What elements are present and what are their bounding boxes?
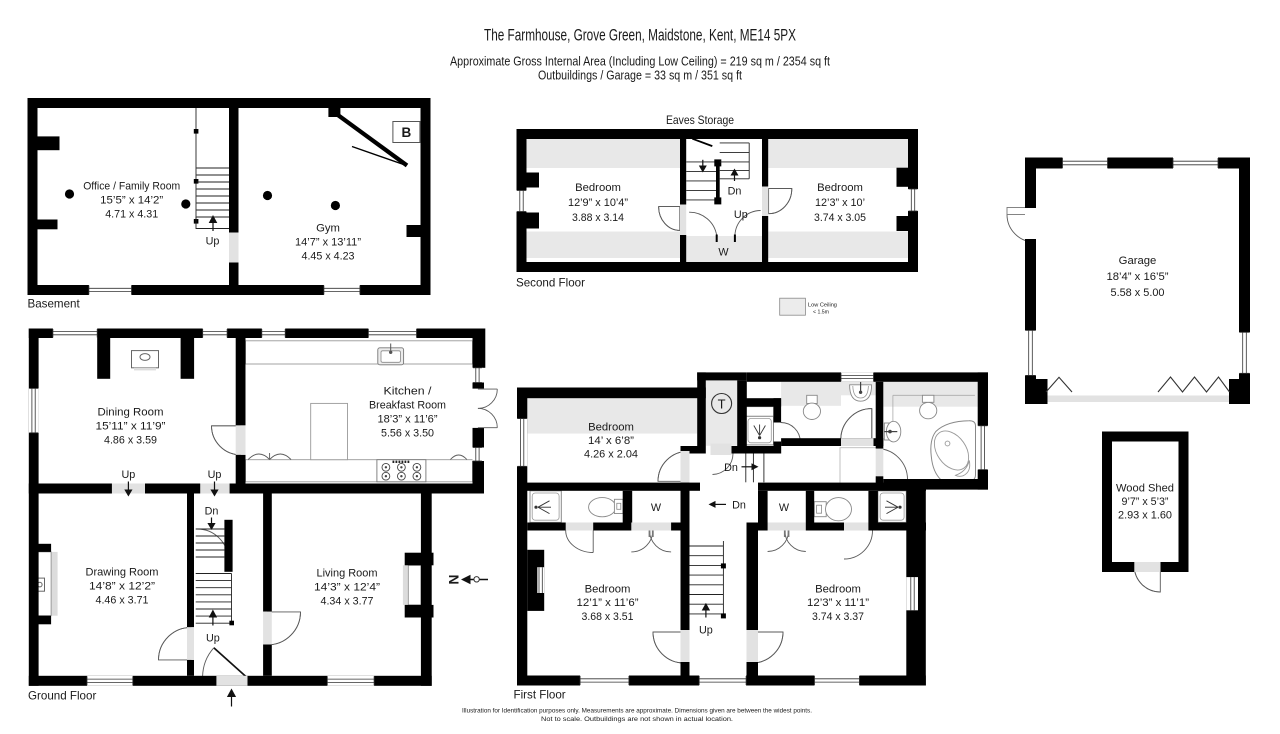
svg-text:B: B <box>402 125 412 140</box>
svg-text:Up: Up <box>734 209 748 221</box>
svg-text:W: W <box>651 502 662 514</box>
svg-text:Up: Up <box>208 469 222 481</box>
svg-text:Up: Up <box>206 236 220 248</box>
svg-text:12’3” x 10’: 12’3” x 10’ <box>815 197 865 209</box>
svg-text:15’5” x 14’2”: 15’5” x 14’2” <box>100 195 163 207</box>
svg-text:4.86 x 3.59: 4.86 x 3.59 <box>104 435 157 447</box>
svg-text:3.74 x 3.05: 3.74 x 3.05 <box>814 212 866 224</box>
svg-text:Up: Up <box>699 625 713 637</box>
svg-text:Dn: Dn <box>732 500 746 512</box>
svg-text:Drawing Room: Drawing Room <box>86 567 159 579</box>
svg-text:Eaves Storage: Eaves Storage <box>666 114 734 127</box>
svg-text:Second Floor: Second Floor <box>516 277 585 290</box>
svg-text:W: W <box>718 247 729 259</box>
svg-text:Bedroom: Bedroom <box>575 182 621 194</box>
svg-text:Dn: Dn <box>724 462 738 474</box>
svg-text:Outbuildings / Garage = 33 sq: Outbuildings / Garage = 33 sq m / 351 sq… <box>538 69 742 83</box>
svg-text:T: T <box>718 396 726 411</box>
svg-text:First Floor: First Floor <box>514 689 566 702</box>
svg-text:Ground Floor: Ground Floor <box>28 690 96 703</box>
svg-text:12’9” x 10’4”: 12’9” x 10’4” <box>568 197 628 209</box>
svg-text:Dn: Dn <box>728 186 742 198</box>
svg-text:Not to scale. Outbuildings ar: Not to scale. Outbuildings are not shown… <box>541 716 733 723</box>
svg-text:N: N <box>446 574 462 584</box>
svg-text:< 1.5m: < 1.5m <box>813 310 829 316</box>
svg-text:Bedroom: Bedroom <box>815 584 861 596</box>
svg-text:14’7” x 13’11”: 14’7” x 13’11” <box>295 237 361 249</box>
svg-text:4.26 x 2.04: 4.26 x 2.04 <box>584 449 638 461</box>
svg-text:Wood Shed: Wood Shed <box>1116 483 1174 495</box>
svg-text:Bedroom: Bedroom <box>585 584 631 596</box>
svg-text:Garage: Garage <box>1119 255 1157 267</box>
svg-text:Kitchen /: Kitchen / <box>384 386 433 398</box>
svg-text:12’3” x 11’1”: 12’3” x 11’1” <box>807 597 869 609</box>
svg-text:Gym: Gym <box>316 223 340 235</box>
svg-text:5.56 x 3.50: 5.56 x 3.50 <box>381 428 434 440</box>
svg-text:Basement: Basement <box>28 298 81 311</box>
svg-text:Dn: Dn <box>205 506 219 518</box>
svg-text:Low Ceiling: Low Ceiling <box>808 303 837 309</box>
svg-text:Dining Room: Dining Room <box>98 407 164 419</box>
svg-text:12’1” x 11’6”: 12’1” x 11’6” <box>577 597 639 609</box>
svg-text:Illustration for Identificatio: Illustration for Identification purposes… <box>462 708 812 715</box>
svg-text:Bedroom: Bedroom <box>588 422 634 434</box>
svg-text:Approximate Gross Internal Are: Approximate Gross Internal Area (Includi… <box>450 55 830 69</box>
svg-text:4.71 x 4.31: 4.71 x 4.31 <box>105 209 158 221</box>
svg-text:3.74 x 3.37: 3.74 x 3.37 <box>812 611 864 623</box>
svg-text:2.93 x 1.60: 2.93 x 1.60 <box>1118 510 1172 522</box>
svg-text:14’ x 6’8”: 14’ x 6’8” <box>588 435 634 447</box>
svg-text:4.46 x 3.71: 4.46 x 3.71 <box>96 595 149 607</box>
svg-text:Up: Up <box>206 633 220 645</box>
svg-text:18’4” x 16’5”: 18’4” x 16’5” <box>1107 271 1169 283</box>
svg-text:Living Room: Living Room <box>317 568 378 580</box>
svg-text:15’11” x 11’9”: 15’11” x 11’9” <box>96 421 166 433</box>
svg-text:9’7” x 5’3”: 9’7” x 5’3” <box>1122 496 1169 508</box>
svg-text:3.68 x 3.51: 3.68 x 3.51 <box>582 611 634 623</box>
svg-text:W: W <box>779 502 790 514</box>
svg-text:5.58 x 5.00: 5.58 x 5.00 <box>1111 287 1165 299</box>
svg-text:4.34 x 3.77: 4.34 x 3.77 <box>321 596 374 608</box>
svg-text:14’8” x 12’2”: 14’8” x 12’2” <box>89 581 155 593</box>
svg-text:14’3” x 12’4”: 14’3” x 12’4” <box>314 582 380 594</box>
svg-text:Office / Family Room: Office / Family Room <box>83 181 180 193</box>
svg-text:4.45 x 4.23: 4.45 x 4.23 <box>302 251 355 263</box>
svg-text:Bedroom: Bedroom <box>817 182 863 194</box>
svg-text:18’3” x 11’6”: 18’3” x 11’6” <box>378 414 438 426</box>
svg-text:3.88 x 3.14: 3.88 x 3.14 <box>572 212 624 224</box>
svg-text:Breakfast Room: Breakfast Room <box>369 400 446 412</box>
svg-text:The Farmhouse, Grove Green, Ma: The Farmhouse, Grove Green, Maidstone, K… <box>484 27 796 45</box>
svg-text:Up: Up <box>121 469 135 481</box>
